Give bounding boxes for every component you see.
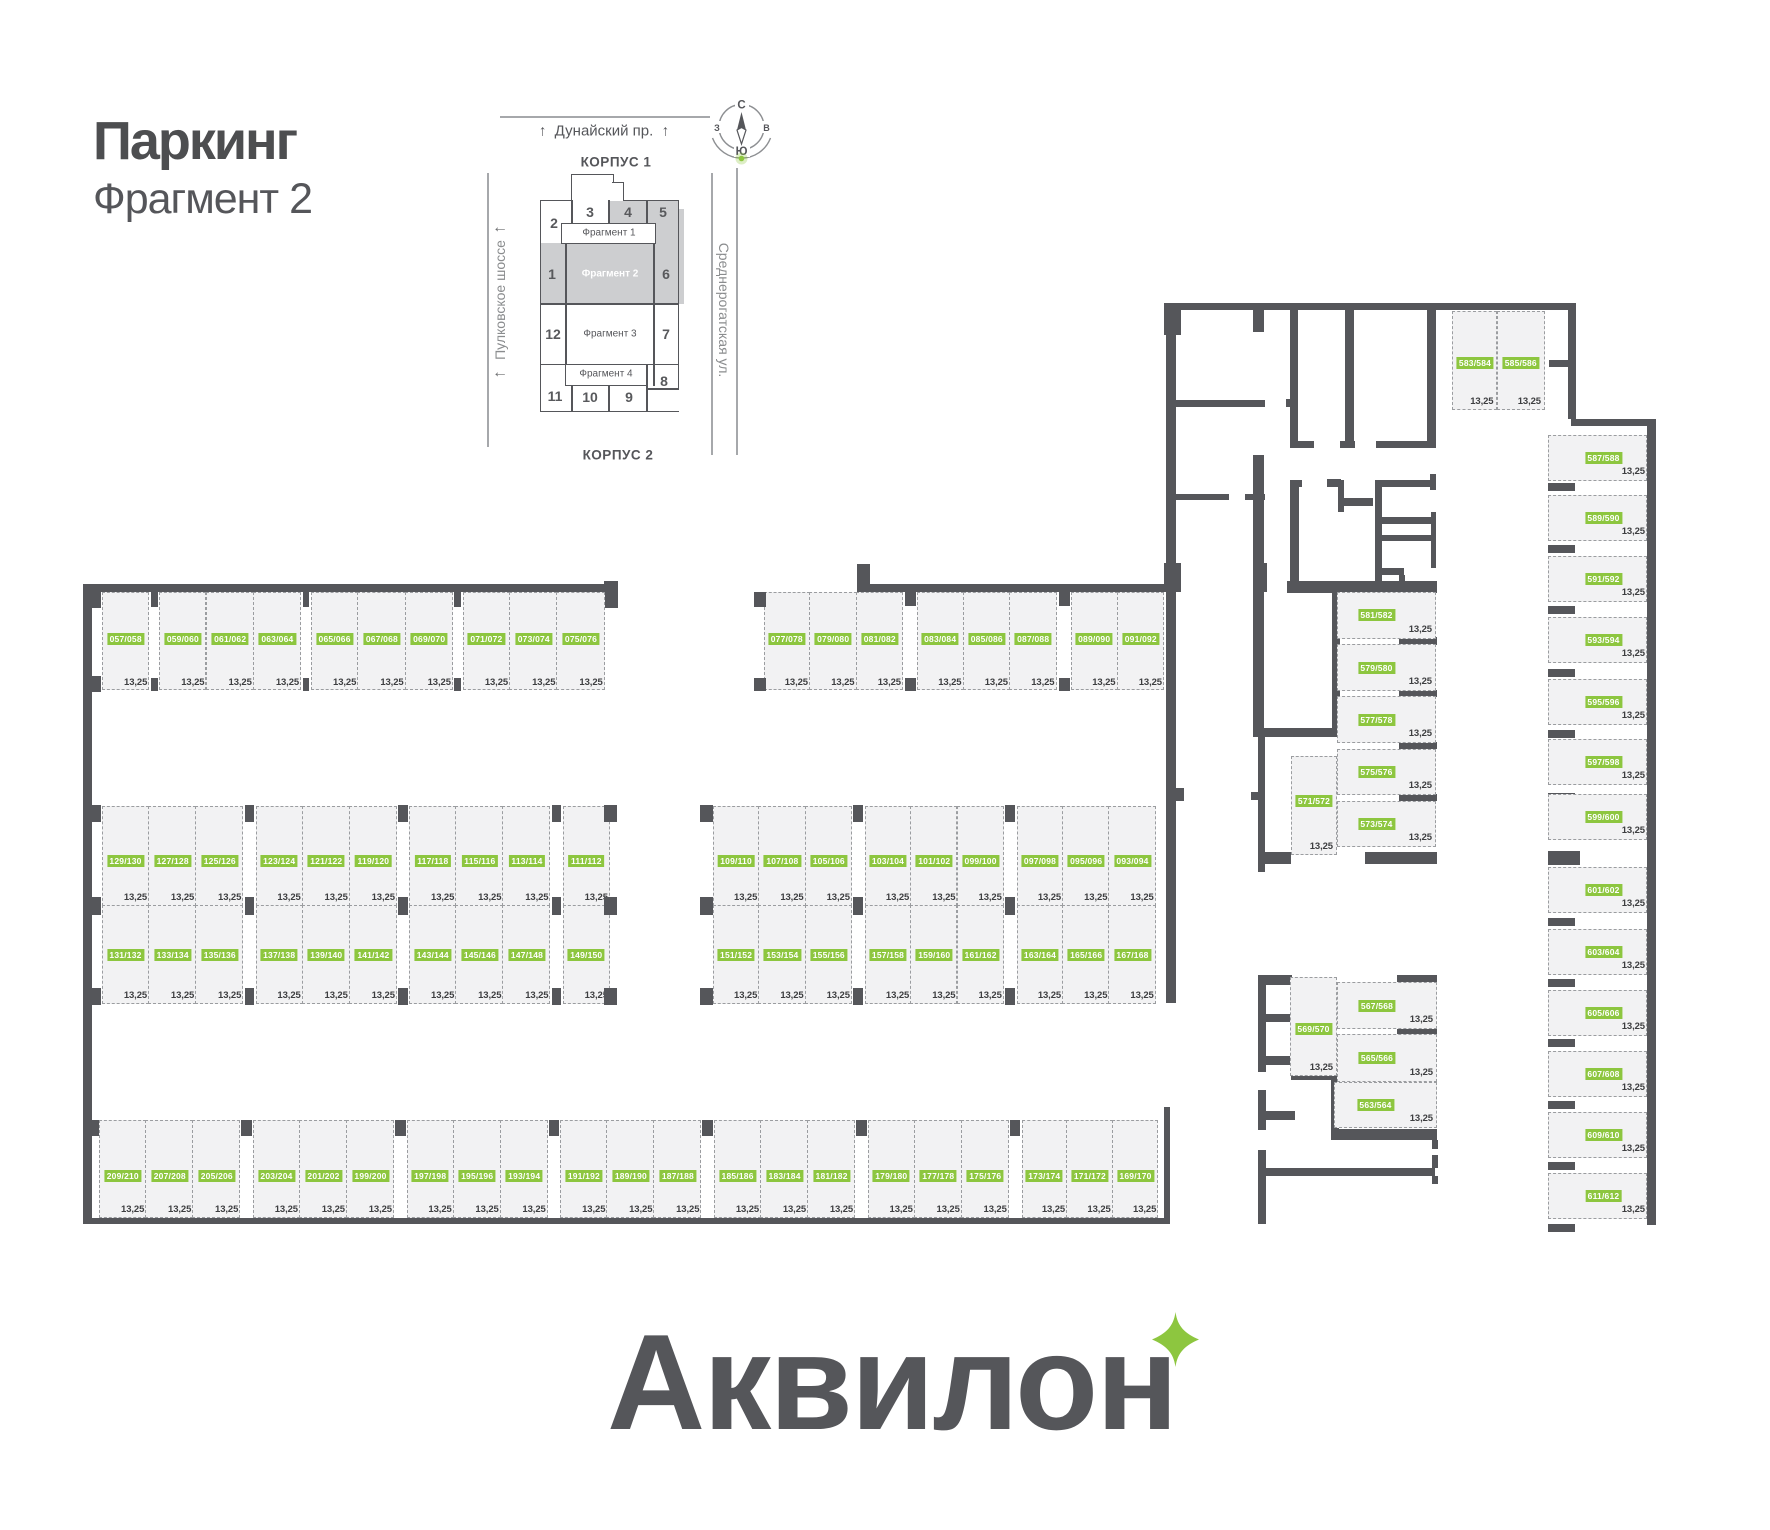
svg-text:В: В xyxy=(763,123,770,133)
svg-text:З: З xyxy=(714,123,720,133)
svg-text:С: С xyxy=(737,100,745,112)
